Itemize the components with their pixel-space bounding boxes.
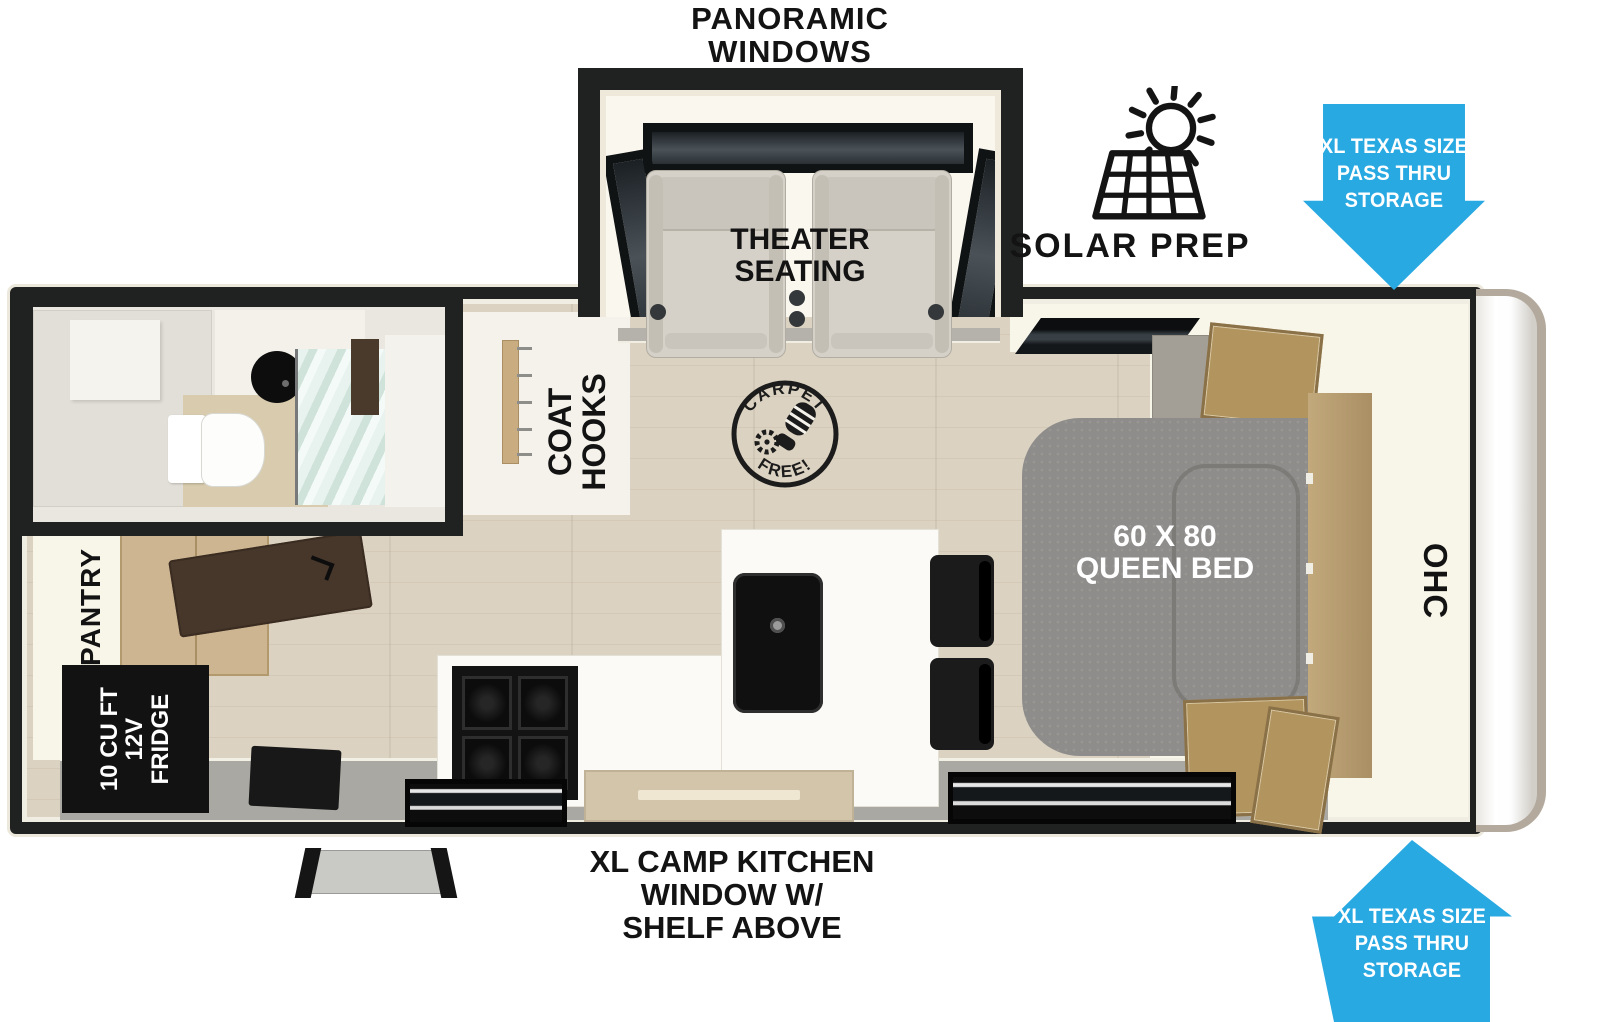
pass-thru-label-top: XL TEXAS SIZE PASS THRU STORAGE [1308, 104, 1479, 215]
solar-prep-label: SOLAR PREP [985, 228, 1275, 264]
bathroom [15, 289, 463, 536]
shower-glass-door [295, 349, 396, 505]
island-chair [930, 555, 994, 647]
bench-legs [248, 746, 341, 811]
seat-cupholder-icon [650, 304, 666, 320]
shower-wall [385, 335, 445, 507]
pantry-label: PANTRY [48, 552, 134, 662]
fridge-label: 10 CU FT 12V FRIDGE [97, 687, 173, 791]
seat-cupholder-icon [789, 290, 805, 306]
entry-step [310, 850, 444, 894]
pass-thru-label-bottom: XL TEXAS SIZE PASS THRU STORAGE [1318, 840, 1506, 985]
coat-hooks-rail [502, 340, 519, 464]
bathroom-room [33, 307, 445, 522]
front-cap-body [1476, 296, 1537, 825]
carpet-free-badge: CARPET FREE! [729, 378, 841, 490]
queen-bed-label: 60 X 80 QUEEN BED [1035, 521, 1295, 585]
camp-kitchen-label: XL CAMP KITCHEN WINDOW W/ SHELF ABOVE [512, 846, 952, 945]
panoramic-window-center [643, 123, 973, 173]
table-handle-icon [306, 555, 335, 580]
tire-print-icon [757, 432, 777, 452]
sink-drain-icon [770, 618, 785, 633]
theater-seating-label: THEATER SEATING [660, 224, 940, 288]
front-cap [1476, 289, 1546, 832]
camp-kitchen-shelf [584, 770, 854, 822]
seat-cupholder-icon [928, 304, 944, 320]
ohc-label: OHC [1394, 538, 1476, 624]
shower-shelf [351, 339, 379, 415]
seat-cupholder-icon [789, 311, 805, 327]
toilet-bowl [201, 413, 265, 487]
floorplan-canvas: PANORAMIC WINDOWS 10 CU FT 12V FRIDGE [0, 0, 1600, 1022]
pass-thru-arrow-down-icon: XL TEXAS SIZE PASS THRU STORAGE [1303, 104, 1485, 290]
kitchen-sink [733, 573, 823, 713]
bed-pillow-area [1172, 464, 1300, 710]
fridge: 10 CU FT 12V FRIDGE [62, 665, 209, 813]
solar-prep-icon [1080, 86, 1220, 231]
bathroom-upper-cabinet [70, 320, 160, 400]
panoramic-windows-label: PANORAMIC WINDOWS [555, 3, 1025, 69]
island-chair [930, 658, 994, 750]
pass-thru-arrow-up-icon: XL TEXAS SIZE PASS THRU STORAGE [1312, 840, 1512, 1022]
coat-hooks-label: COAT HOOKS [518, 357, 638, 507]
bedroom-window [948, 772, 1236, 824]
kitchen-side-window [405, 779, 567, 827]
overhead-cabinet-door [1200, 322, 1323, 429]
svg-text:FREE!: FREE! [755, 454, 816, 481]
